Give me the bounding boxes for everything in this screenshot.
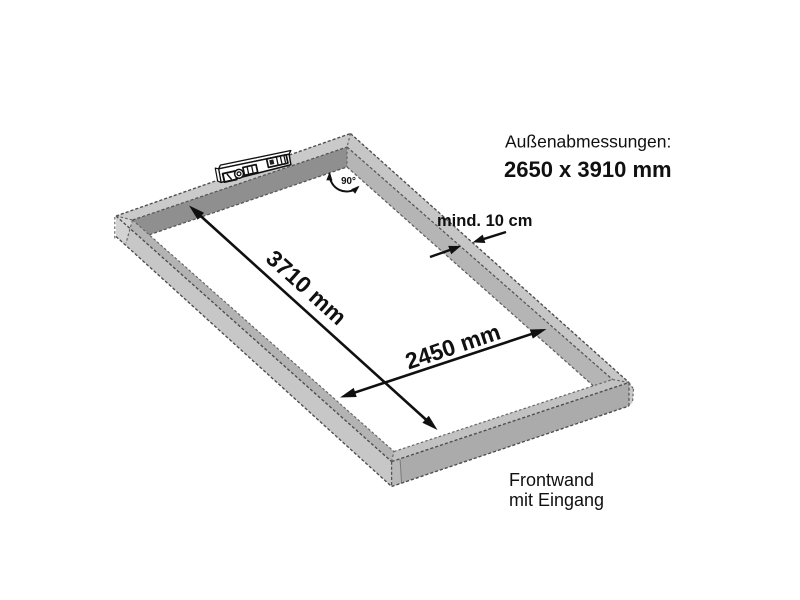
svg-text:mit Eingang: mit Eingang [509, 490, 604, 510]
svg-text:mind. 10 cm: mind. 10 cm [437, 212, 532, 230]
svg-text:Außenabmessungen:: Außenabmessungen: [505, 132, 671, 152]
svg-text:2650 x 3910 mm: 2650 x 3910 mm [504, 157, 672, 182]
svg-text:90°: 90° [341, 176, 356, 187]
svg-text:Frontwand: Frontwand [509, 470, 594, 490]
svg-text:2450 mm: 2450 mm [402, 319, 504, 375]
svg-text:3710 mm: 3710 mm [261, 245, 352, 330]
